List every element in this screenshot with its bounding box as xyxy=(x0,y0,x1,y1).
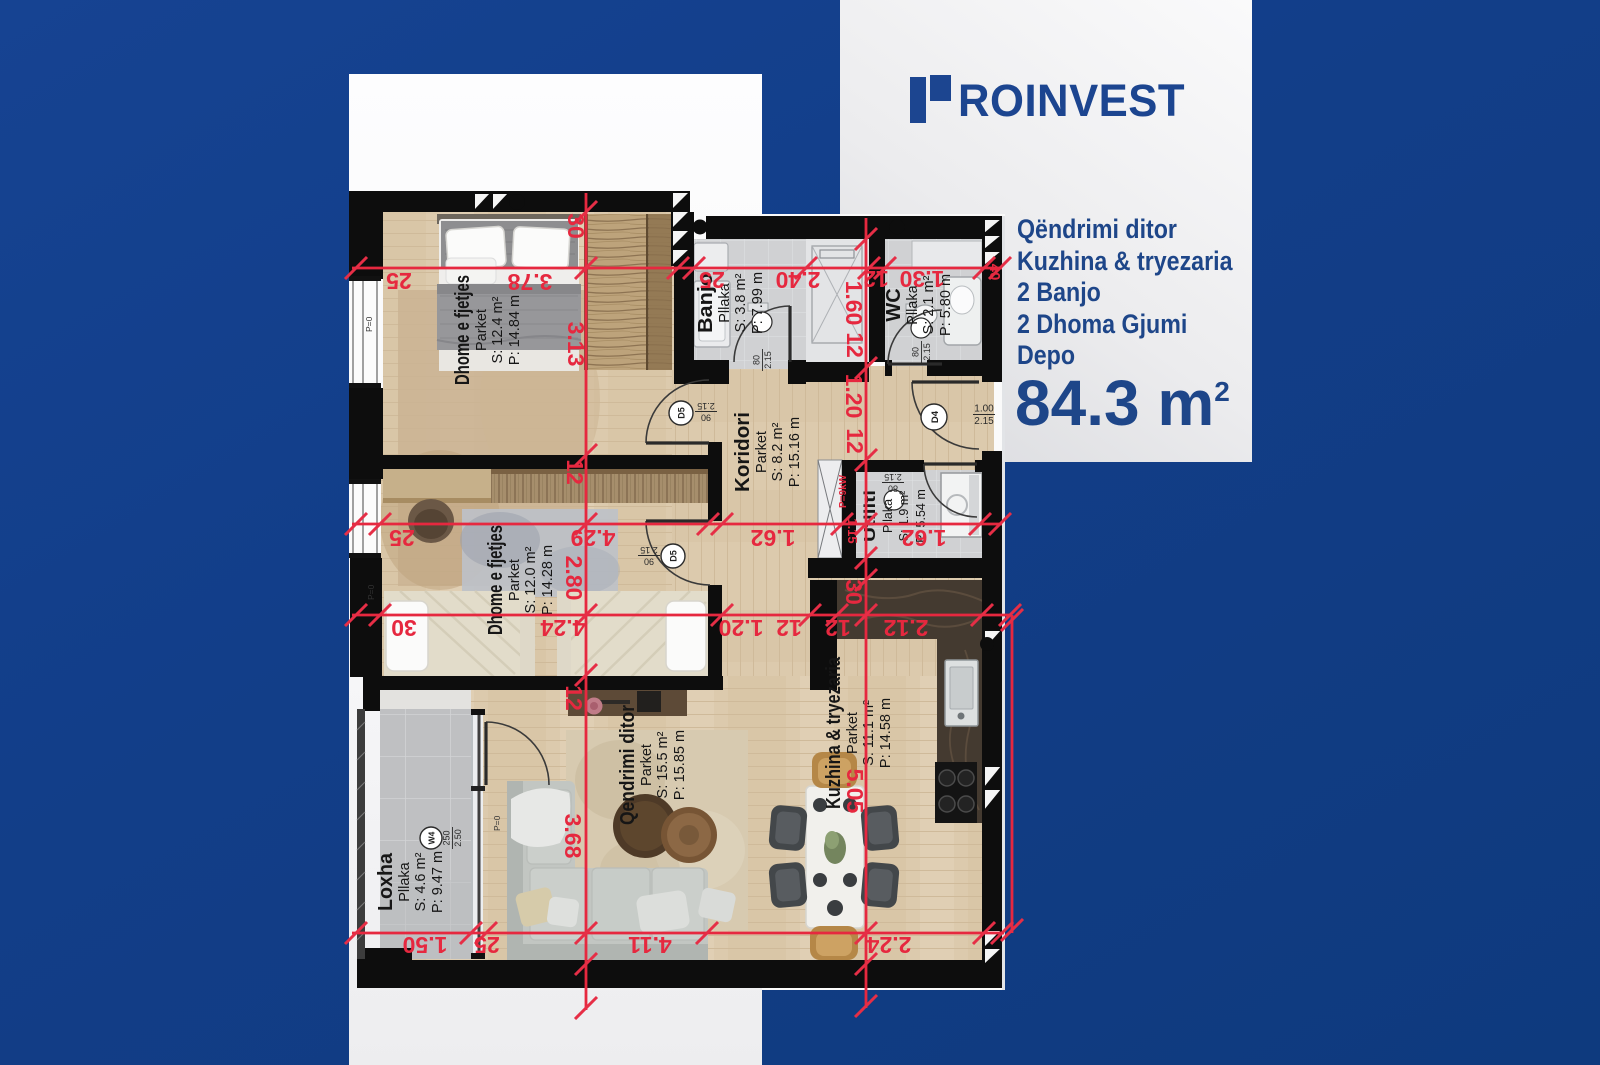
svg-text:2.15: 2.15 xyxy=(697,401,715,411)
svg-text:2.24: 2.24 xyxy=(866,932,911,958)
svg-text:40: 40 xyxy=(986,264,1003,281)
svg-text:2.15: 2.15 xyxy=(922,343,932,361)
svg-text:80: 80 xyxy=(911,347,921,357)
svg-text:1.30: 1.30 xyxy=(900,266,945,292)
svg-text:Dhome e fjetjes: Dhome e fjetjes xyxy=(485,525,507,635)
svg-text:2.80: 2.80 xyxy=(561,556,587,601)
svg-text:W4: W4 xyxy=(427,831,437,844)
svg-text:25: 25 xyxy=(699,267,725,293)
svg-text:Parket: Parket xyxy=(754,431,770,473)
svg-text:S: 8.2 m²: S: 8.2 m² xyxy=(770,422,786,481)
svg-text:1.00: 1.00 xyxy=(974,404,994,415)
svg-text:P: 7.99 m: P: 7.99 m xyxy=(750,272,766,334)
svg-text:2.15: 2.15 xyxy=(884,472,902,482)
svg-text:30: 30 xyxy=(841,579,867,605)
svg-text:S: 3.8 m²: S: 3.8 m² xyxy=(733,273,749,332)
svg-text:25: 25 xyxy=(389,525,415,551)
svg-text:4.29: 4.29 xyxy=(571,525,616,551)
svg-text:D5: D5 xyxy=(669,550,679,562)
svg-text:Kuzhina & tryezaria: Kuzhina & tryezaria xyxy=(823,656,845,809)
svg-text:12: 12 xyxy=(842,428,868,454)
svg-text:Loxha: Loxha xyxy=(375,852,397,911)
svg-text:90: 90 xyxy=(701,413,711,423)
svg-text:1.62: 1.62 xyxy=(751,525,796,551)
svg-text:P: 9.47 m: P: 9.47 m xyxy=(430,851,446,913)
svg-text:Parket: Parket xyxy=(507,559,523,601)
svg-text:2.15: 2.15 xyxy=(763,351,773,369)
svg-text:WC: WC xyxy=(883,288,905,321)
svg-text:12: 12 xyxy=(825,615,851,641)
svg-text:80: 80 xyxy=(752,355,762,365)
svg-text:1.20: 1.20 xyxy=(719,615,764,641)
svg-text:1.60: 1.60 xyxy=(841,281,867,326)
svg-text:3.68: 3.68 xyxy=(560,814,586,859)
svg-text:1.15: 1.15 xyxy=(845,518,860,543)
svg-text:D4: D4 xyxy=(930,410,941,423)
svg-text:Koridori: Koridori xyxy=(732,412,754,492)
svg-text:P=0: P=0 xyxy=(364,316,374,332)
svg-text:2.50: 2.50 xyxy=(453,829,463,847)
svg-text:4.24: 4.24 xyxy=(540,615,585,641)
svg-text:25: 25 xyxy=(386,268,412,294)
svg-text:P: 15.16 m: P: 15.16 m xyxy=(787,417,803,487)
svg-text:3.13: 3.13 xyxy=(563,322,589,367)
svg-text:5.05: 5.05 xyxy=(842,769,868,814)
svg-text:Dhome e fjetjes: Dhome e fjetjes xyxy=(452,275,474,385)
svg-text:S: 11.1 m²: S: 11.1 m² xyxy=(861,700,877,766)
svg-text:S: 12.0 m²: S: 12.0 m² xyxy=(523,546,539,613)
svg-text:P=0: P=0 xyxy=(492,815,502,831)
svg-text:D5: D5 xyxy=(677,407,687,419)
svg-text:25: 25 xyxy=(474,932,500,958)
svg-text:2.40: 2.40 xyxy=(776,267,821,293)
svg-text:2.15: 2.15 xyxy=(974,416,994,427)
svg-text:1.20: 1.20 xyxy=(841,374,867,419)
svg-text:S: 4.6 m²: S: 4.6 m² xyxy=(413,852,429,911)
svg-text:P=0: P=0 xyxy=(366,584,376,600)
svg-text:P: 14.58 m: P: 14.58 m xyxy=(878,698,894,768)
svg-text:Pllaka: Pllaka xyxy=(397,861,413,901)
svg-text:250: 250 xyxy=(442,830,452,845)
svg-text:2.15: 2.15 xyxy=(640,545,658,555)
svg-text:P=9kW: P=9kW xyxy=(838,474,849,508)
svg-text:2.12: 2.12 xyxy=(884,615,929,641)
svg-text:4.11: 4.11 xyxy=(628,932,672,958)
svg-text:P: 14.84 m: P: 14.84 m xyxy=(507,295,523,365)
svg-text:Parket: Parket xyxy=(845,712,861,754)
svg-text:90: 90 xyxy=(644,557,654,567)
svg-text:12: 12 xyxy=(776,615,802,641)
svg-text:1.62: 1.62 xyxy=(902,525,947,551)
svg-text:Parket: Parket xyxy=(474,309,490,351)
svg-text:12: 12 xyxy=(561,685,587,711)
svg-text:P: 14.28 m: P: 14.28 m xyxy=(540,545,556,615)
svg-text:12: 12 xyxy=(842,332,868,358)
svg-text:3.78: 3.78 xyxy=(507,269,552,295)
svg-text:Pllaka: Pllaka xyxy=(881,499,895,533)
svg-text:S: 15.5 m²: S: 15.5 m² xyxy=(655,731,671,798)
svg-text:1.50: 1.50 xyxy=(403,932,448,958)
svg-text:S: 12.4 m²: S: 12.4 m² xyxy=(490,296,506,363)
svg-text:Parket: Parket xyxy=(639,744,655,786)
svg-text:P: 15.85 m: P: 15.85 m xyxy=(672,730,688,800)
svg-text:12: 12 xyxy=(562,459,588,485)
svg-text:30: 30 xyxy=(563,213,589,239)
svg-text:Qendrimi ditor: Qendrimi ditor xyxy=(617,705,639,825)
svg-text:30: 30 xyxy=(391,615,417,641)
